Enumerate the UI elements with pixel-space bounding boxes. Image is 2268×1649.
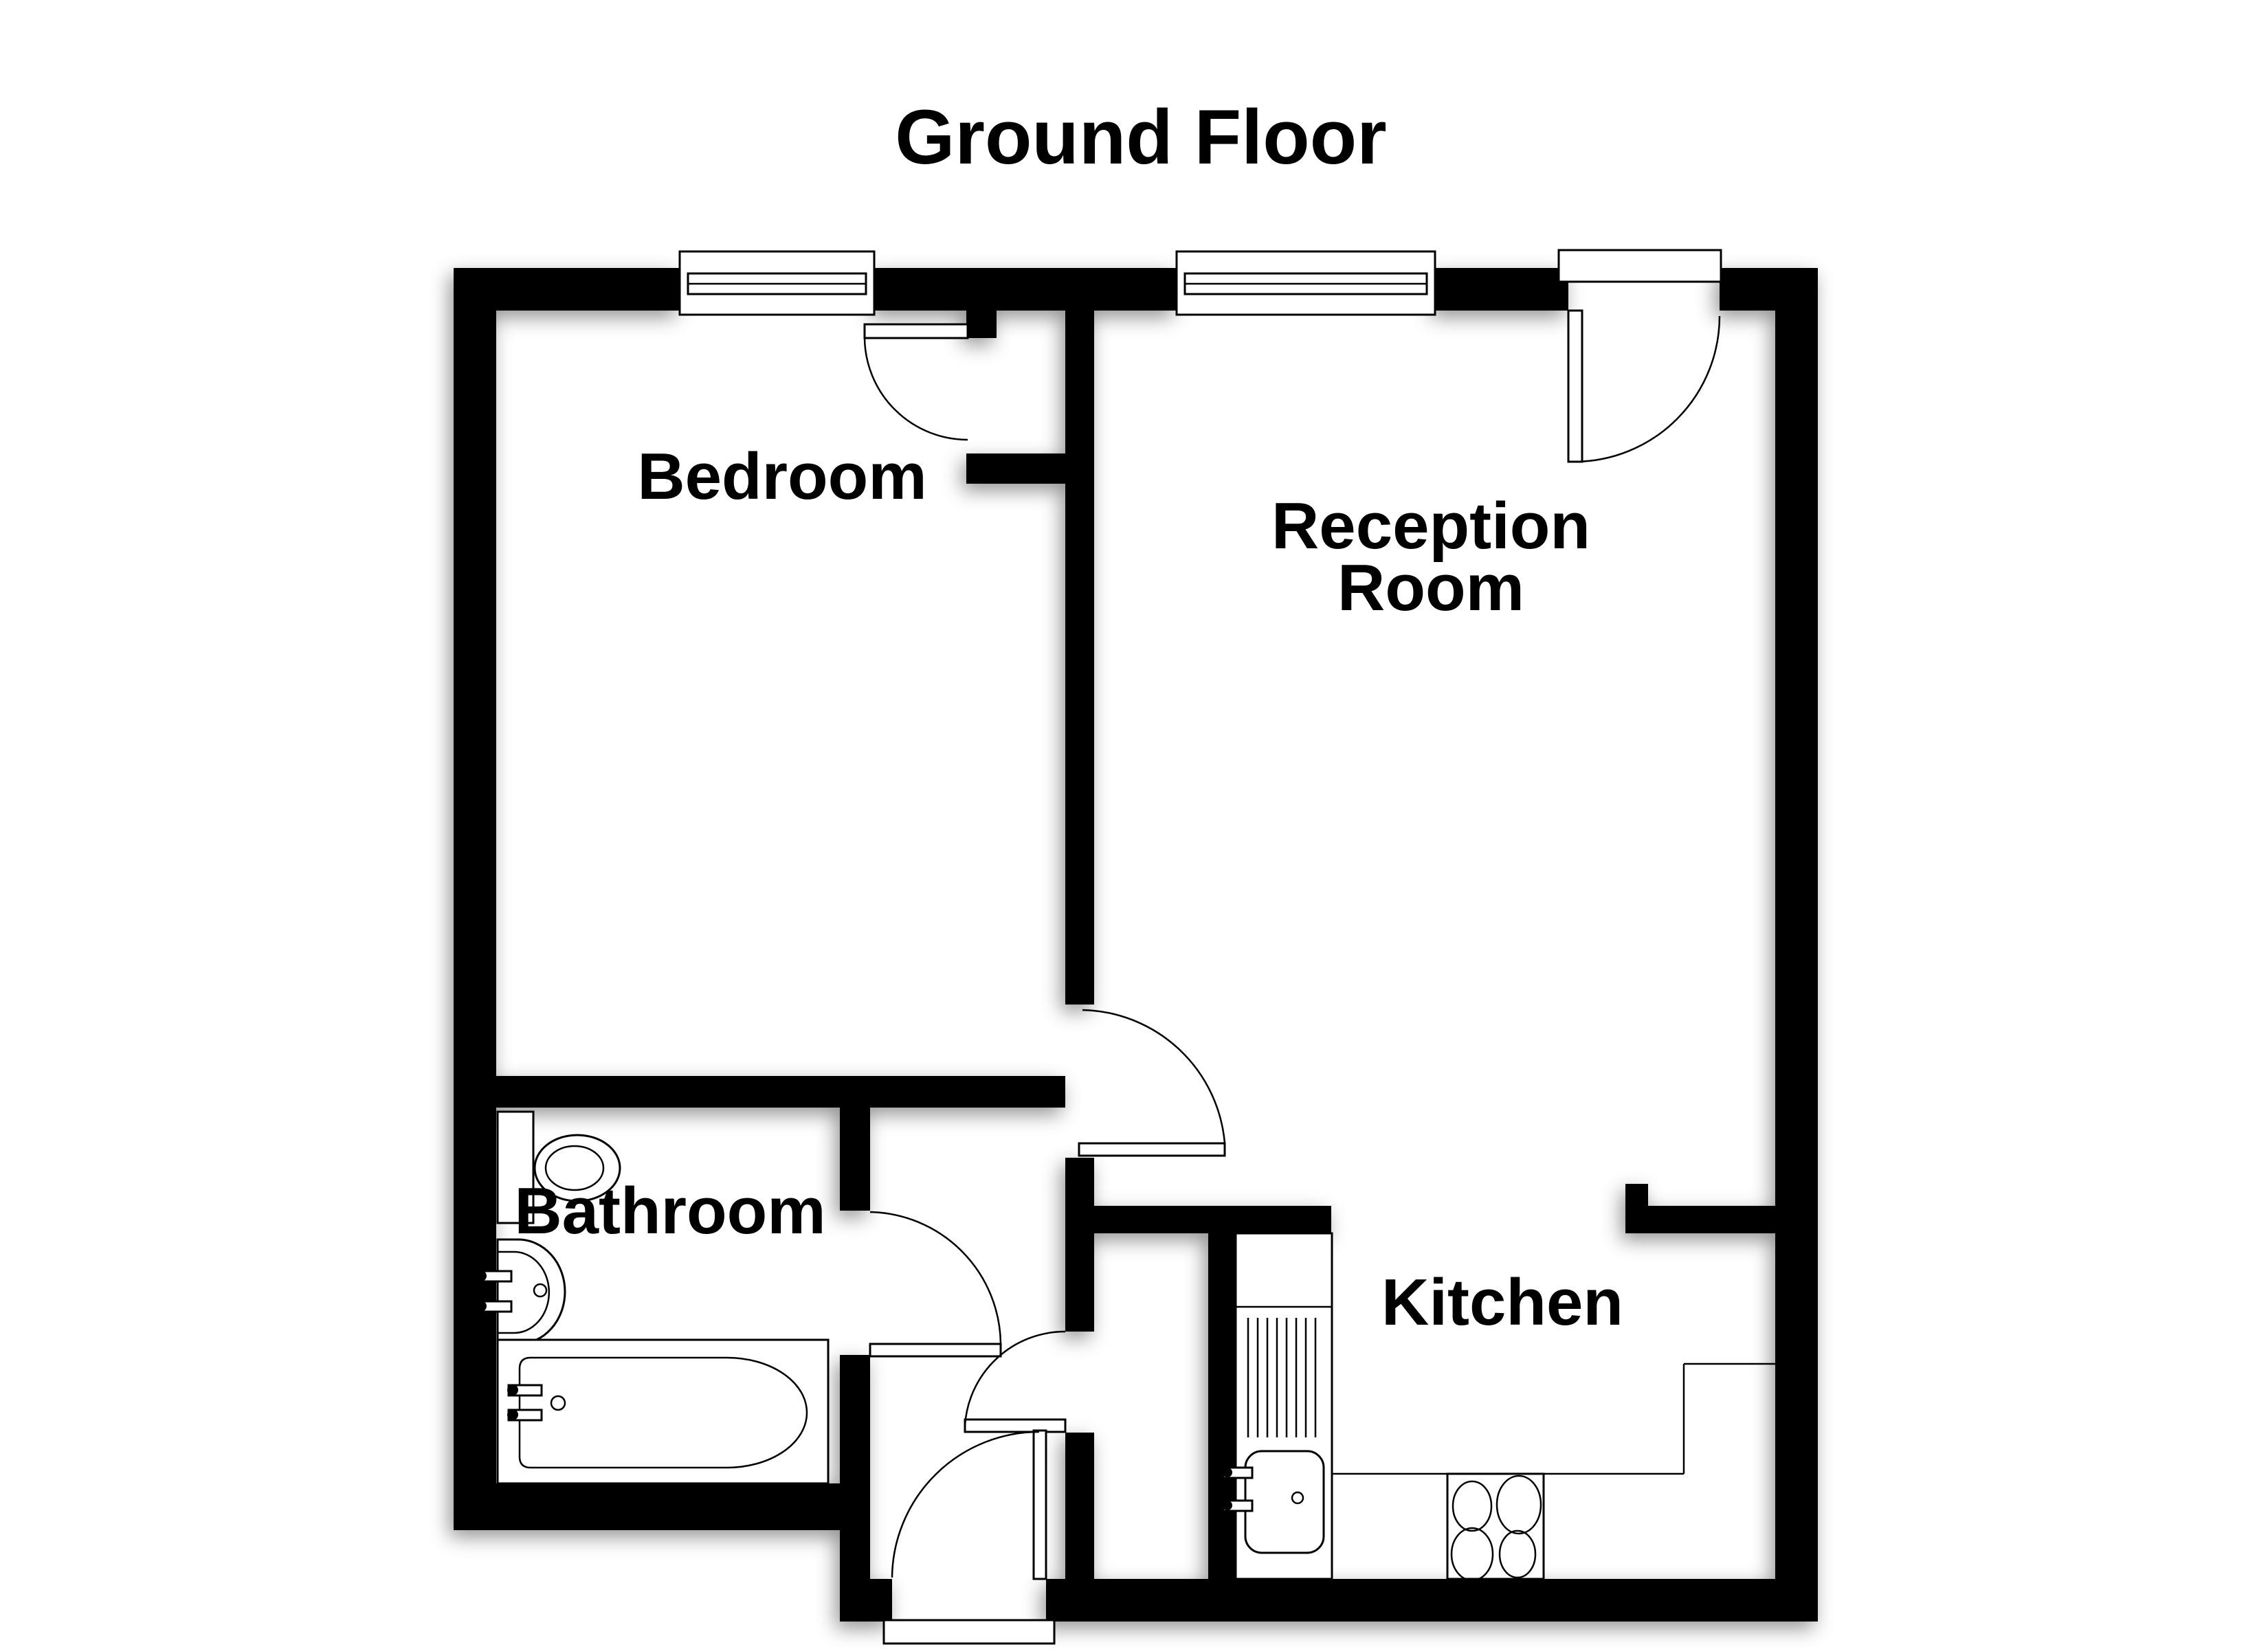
hob	[1447, 1474, 1544, 1580]
bathroom-right-wall	[840, 1108, 870, 1211]
sink-basin	[1245, 1451, 1324, 1553]
bedroom-window	[680, 251, 874, 315]
right-wall	[1775, 268, 1818, 1622]
kitchen-top-wall	[1065, 1206, 1331, 1233]
floor-plan-drawing: Ground Floor Bedroom Reception Room Bath…	[0, 0, 2268, 1649]
bedroom-door-jamb	[966, 311, 997, 338]
kitchen-left-wall	[1208, 1233, 1236, 1579]
kitchen-label: Kitchen	[1381, 1266, 1623, 1339]
bathroom-right-wall	[840, 1355, 870, 1622]
bottom-wall-segment	[1046, 1579, 1818, 1622]
reception-door	[1079, 1010, 1225, 1156]
bathroom-bottom-wall	[454, 1483, 848, 1530]
door-threshold	[884, 1620, 1054, 1644]
reception-label-line2: Room	[1337, 551, 1524, 625]
kitchen-counter	[1332, 1364, 1775, 1474]
kitchen-wall-stub	[1625, 1184, 1648, 1206]
reception-window	[1177, 251, 1435, 315]
top-wall-segment	[874, 268, 1177, 311]
top-wall-segment	[1435, 268, 1568, 311]
front-door	[884, 1431, 1054, 1644]
left-wall	[454, 268, 496, 1530]
divider-wall-upper	[1065, 311, 1094, 1005]
door-swing-arc	[1082, 1010, 1225, 1143]
divider-wall-lower	[1065, 1433, 1094, 1579]
door-leaf	[1568, 311, 1582, 462]
bedroom-door	[865, 324, 968, 440]
bathtub	[498, 1340, 828, 1483]
door-leaf	[965, 1420, 1065, 1432]
door-swing-arc	[892, 1432, 1039, 1578]
divider-wall-mid	[1065, 1158, 1094, 1332]
door-threshold	[1559, 250, 1721, 282]
door-leaf	[1079, 1143, 1225, 1156]
bedroom-label: Bedroom	[637, 440, 926, 513]
bedroom-bottom-wall	[496, 1076, 1065, 1108]
floor-plan-page: Ground Floor Bedroom Reception Room Bath…	[0, 0, 2268, 1649]
door-leaf	[870, 1344, 1001, 1356]
door-leaf	[1034, 1431, 1046, 1579]
door-leaf	[865, 324, 968, 338]
page-title: Ground Floor	[895, 94, 1386, 180]
reception-external-door	[1559, 250, 1721, 462]
bedroom-door-return-wall	[966, 453, 1065, 484]
door-swing-arc	[865, 338, 968, 440]
door-swing-arc	[1575, 316, 1720, 462]
kitchen-top-right-wall	[1625, 1206, 1775, 1233]
kitchen-sink-unit	[1223, 1233, 1332, 1579]
bathroom-door	[870, 1212, 1001, 1356]
door-swing-arc	[870, 1212, 1001, 1344]
bathroom-label: Bathroom	[514, 1174, 825, 1248]
